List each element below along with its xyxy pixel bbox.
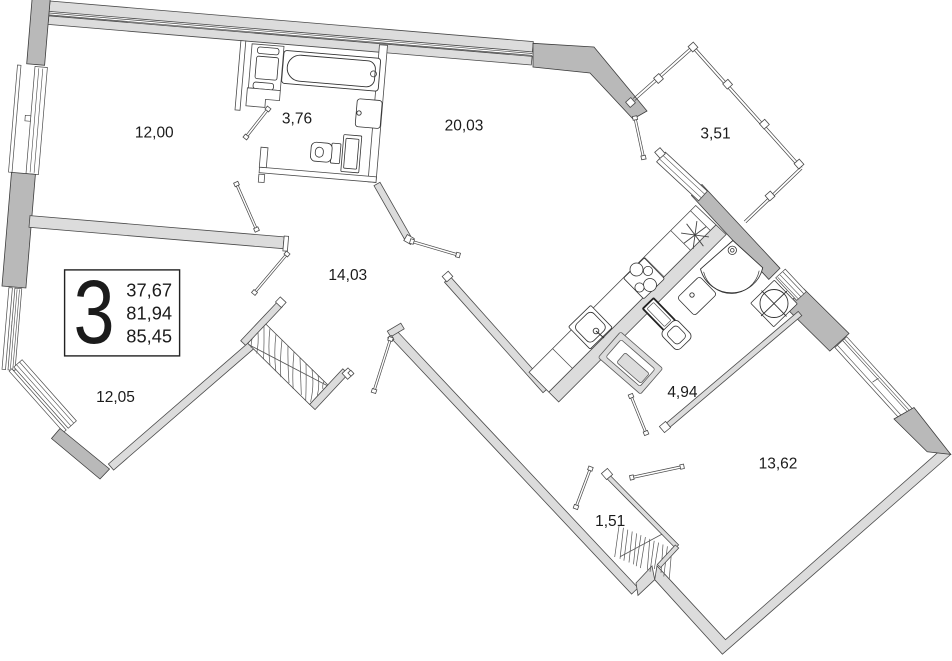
- svg-text:3: 3: [73, 263, 114, 363]
- svg-text:3,76: 3,76: [282, 110, 312, 127]
- svg-text:12,05: 12,05: [96, 389, 135, 406]
- svg-text:12,00: 12,00: [135, 124, 174, 141]
- svg-text:1,51: 1,51: [595, 513, 625, 530]
- svg-text:81,94: 81,94: [126, 303, 172, 324]
- svg-text:4,94: 4,94: [667, 384, 698, 401]
- svg-text:14,03: 14,03: [328, 267, 367, 284]
- svg-text:37,67: 37,67: [126, 280, 172, 301]
- svg-text:13,62: 13,62: [759, 456, 798, 473]
- svg-text:3,51: 3,51: [700, 126, 730, 143]
- svg-text:85,45: 85,45: [126, 325, 172, 346]
- svg-text:20,03: 20,03: [445, 117, 484, 134]
